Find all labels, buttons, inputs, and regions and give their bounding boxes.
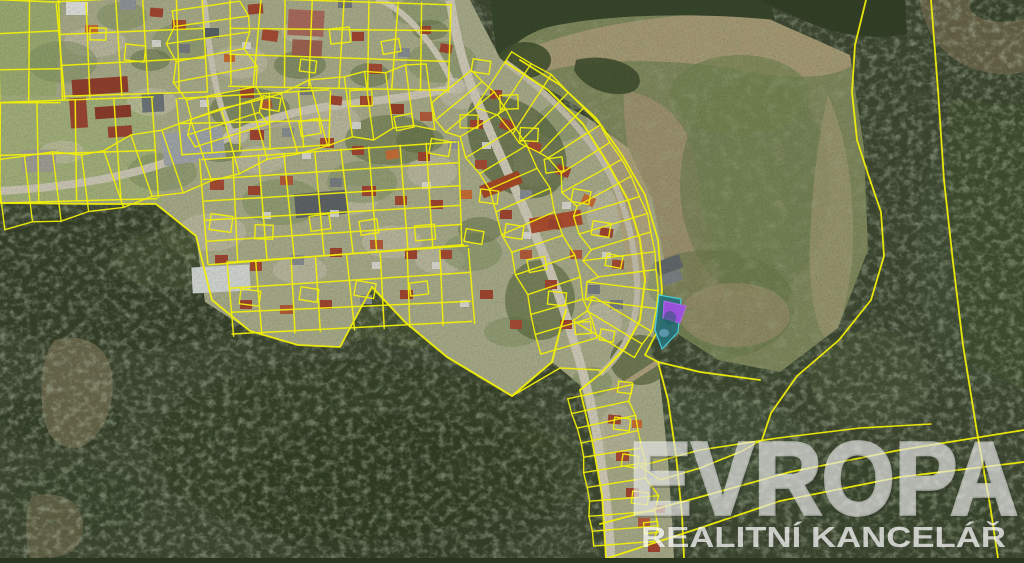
svg-text:REALITNÍ KANCELÁŘ: REALITNÍ KANCELÁŘ	[641, 520, 1006, 554]
svg-text:EVROPA: EVROPA	[629, 421, 1018, 536]
